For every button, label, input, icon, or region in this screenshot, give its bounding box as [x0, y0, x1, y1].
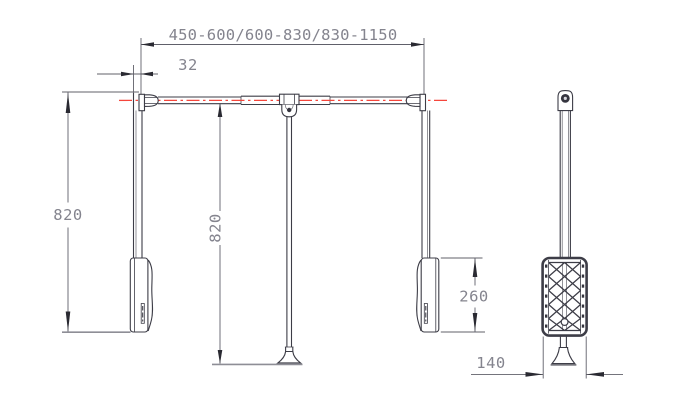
- left-end-cap: [139, 94, 158, 110]
- arrowhead-down: [218, 350, 223, 364]
- screw-dot: [287, 108, 291, 112]
- arrowhead-up: [66, 93, 71, 113]
- foot-shaft: [560, 336, 566, 348]
- lattice-circle: [561, 319, 568, 326]
- cap-plate: [139, 94, 145, 110]
- arm-height-dimension: 820: [53, 92, 139, 332]
- bracket-height-dimension: 260: [441, 258, 489, 332]
- offset-dimension: 32: [97, 56, 198, 93]
- right-end-cap: [406, 94, 425, 110]
- center-pole: [287, 117, 292, 347]
- arrowhead-up: [473, 259, 478, 277]
- foot-flare: [552, 348, 575, 364]
- arrowhead-left: [141, 42, 154, 47]
- shaft-outer-lines: [560, 111, 570, 258]
- bracket-body: [130, 258, 148, 332]
- arrowhead-right: [141, 72, 154, 77]
- right-bracket: [417, 258, 439, 332]
- arm-height-label: 820: [53, 206, 83, 224]
- cap-nose: [145, 95, 159, 107]
- side-foot: [551, 336, 577, 365]
- side-depth-label: 140: [476, 354, 506, 372]
- side-bracket-body: [543, 258, 587, 336]
- left-arm: [134, 93, 143, 258]
- arrowhead-down: [473, 313, 478, 331]
- arrowhead-left: [586, 372, 604, 377]
- screw-center: [564, 97, 567, 100]
- drawing-canvas: 450-600/600-830/830-1150 32: [0, 0, 700, 409]
- pole-lines: [287, 117, 292, 347]
- arrowhead-down: [66, 312, 71, 332]
- pole-foot: [278, 347, 301, 363]
- offset-label: 32: [178, 56, 198, 74]
- foot-neck: [286, 347, 293, 352]
- arrowhead-up: [218, 103, 223, 117]
- bracket-wavy-edge: [148, 260, 152, 331]
- depth-dimension: 140: [471, 337, 623, 379]
- arrowhead-right: [526, 372, 544, 377]
- shaft-inner-lines: [562, 111, 568, 258]
- front-view: 450-600/600-830/830-1150 32: [53, 26, 489, 364]
- center-support: [280, 94, 300, 117]
- arrowhead-right: [411, 42, 424, 47]
- pole-height-dimension: 820: [207, 103, 303, 364]
- arm-lines: [134, 93, 143, 258]
- wardrobe-lift-drawing: 450-600/600-830/830-1150 32: [0, 0, 700, 409]
- bracket-height-label: 260: [459, 288, 489, 306]
- arrowhead-left: [121, 72, 134, 77]
- right-arm: [422, 111, 430, 259]
- cap-plate: [420, 94, 426, 110]
- cap-nose: [406, 95, 420, 107]
- pole-height-label: 820: [207, 213, 225, 243]
- foot-flare: [278, 352, 301, 363]
- left-bracket: [130, 258, 152, 332]
- side-shaft: [560, 111, 570, 258]
- bracket-wavy-edge: [417, 260, 421, 331]
- side-cap: [558, 91, 573, 111]
- support-block: [280, 94, 300, 104]
- side-view: 140: [471, 91, 623, 379]
- width-range-label: 450-600/600-830/830-1150: [169, 26, 398, 44]
- arm-lines: [422, 111, 430, 259]
